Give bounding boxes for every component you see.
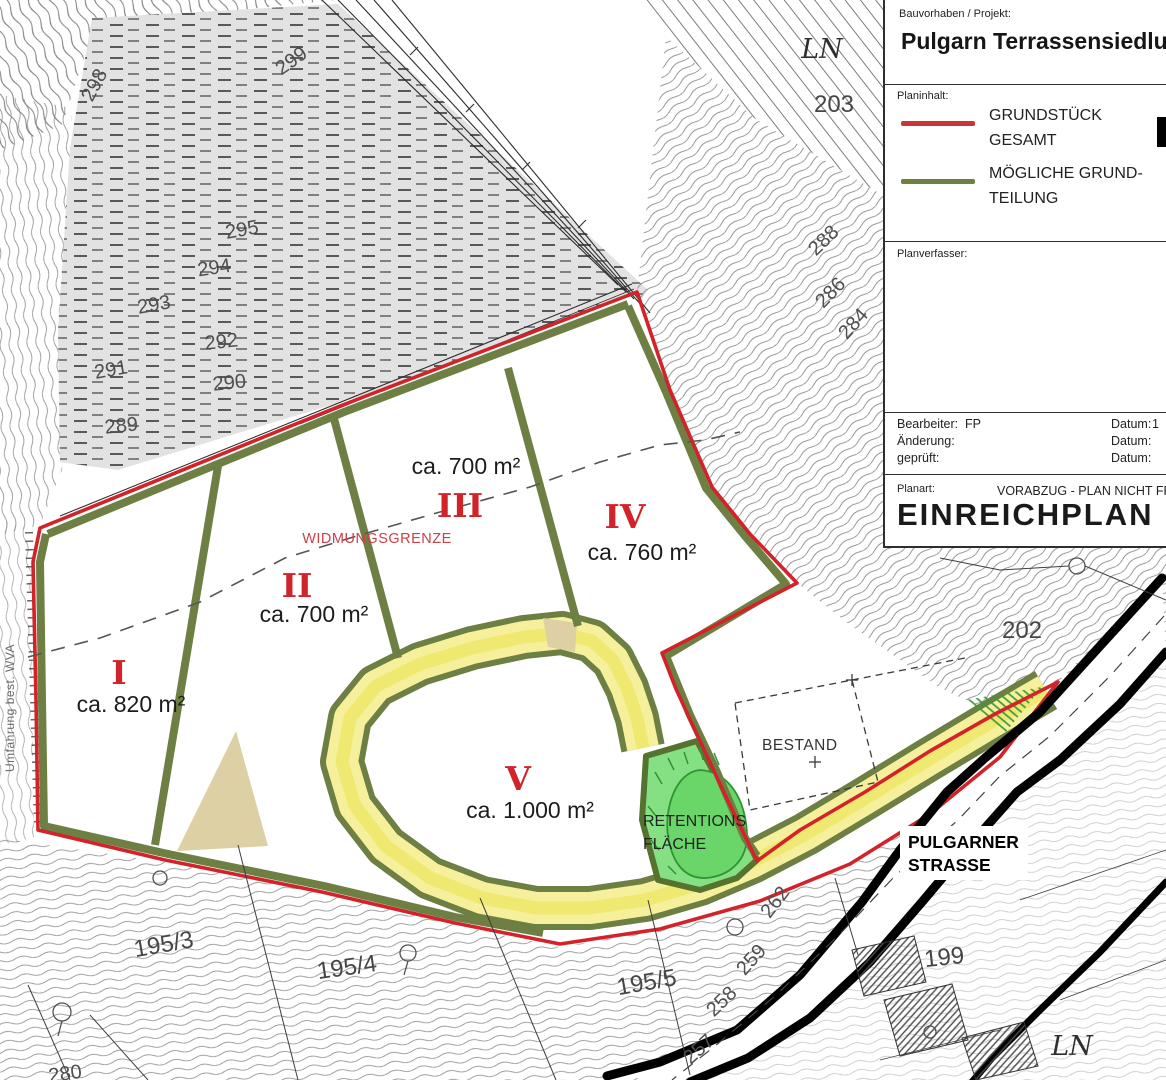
meta-label-geprueft: geprüft:: [897, 451, 939, 465]
street-name-box: PULGARNER STRASSE: [900, 826, 1028, 880]
plot-area-IV: ca. 760 m²: [588, 539, 697, 565]
plot-area-I: ca. 820 m²: [77, 691, 186, 717]
legend-red-label-2: GESAMT: [989, 132, 1057, 150]
edge-black-mark: [1157, 117, 1166, 147]
parcel-199: 199: [923, 942, 966, 973]
plot-area-II: ca. 700 m²: [260, 601, 369, 627]
retention-label-1: RETENTIONS: [643, 813, 746, 830]
plan-scan: I ca. 820 m² II ca. 700 m² III ca. 700 m…: [0, 0, 1166, 1080]
contour-294: 294: [196, 255, 232, 281]
contour-290: 290: [212, 370, 247, 395]
legend-green-label-1: MÖGLICHE GRUND-: [989, 165, 1143, 183]
plan-type: EINREICHPLAN: [897, 497, 1154, 533]
legend-green-label-2: TEILUNG: [989, 190, 1058, 208]
plot-area-V: ca. 1.000 m²: [466, 797, 594, 823]
title-block-project: Bauvorhaben / Projekt: Pulgarn Terrassen…: [885, 0, 1166, 85]
retention-label-2: FLÄCHE: [643, 835, 706, 853]
contour-292: 292: [204, 329, 239, 354]
widmungsgrenze-label: WIDMUNGSGRENZE: [302, 531, 452, 547]
plot-area-III: ca. 700 m²: [412, 453, 521, 479]
legend-red-label-1: GRUNDSTÜCK: [989, 107, 1102, 125]
title-block-plantype: Planart: VORABZUG - PLAN NICHT FREIGE EI…: [885, 475, 1166, 545]
content-label: Planinhalt:: [897, 90, 948, 102]
title-block-author: Planverfasser:: [885, 242, 1166, 413]
ln-mark-bottom: LN: [1050, 1031, 1094, 1062]
plot-numeral-IV: IV: [604, 497, 646, 536]
ln-mark-top: LN: [800, 34, 844, 65]
author-label: Planverfasser:: [897, 248, 967, 260]
plot-numeral-III: III: [437, 486, 483, 525]
contour-289: 289: [104, 413, 139, 438]
meta-value-bearbeiter: FP: [965, 417, 981, 431]
legend-green-line: [901, 179, 975, 184]
meta-label-bearbeiter: Bearbeiter:: [897, 417, 958, 431]
project-name: Pulgarn Terrassensiedlung: [901, 28, 1166, 55]
plot-numeral-V: V: [504, 759, 532, 798]
tan-patch-north: [543, 618, 577, 652]
title-block: Bauvorhaben / Projekt: Pulgarn Terrassen…: [883, 0, 1166, 548]
street-name-line2: STRASSE: [908, 855, 991, 875]
project-label: Bauvorhaben / Projekt:: [899, 8, 1011, 20]
meta-datevalue-bearbeiter: 1: [1152, 417, 1159, 431]
street-name-line1: PULGARNER: [908, 832, 1019, 852]
legend-red-line: [901, 121, 975, 126]
parcel-203: 203: [814, 91, 854, 118]
meta-datelabel-geprueft: Datum:: [1111, 451, 1151, 465]
meta-label-aenderung: Änderung:: [897, 434, 955, 448]
meta-datelabel-aenderung: Datum:: [1111, 434, 1151, 448]
release-note: VORABZUG - PLAN NICHT FREIGE: [997, 484, 1166, 498]
plantype-label: Planart:: [897, 483, 935, 495]
title-block-meta: Bearbeiter: FP Datum: 1 Änderung: Datum:…: [885, 413, 1166, 475]
plot-numeral-I: I: [111, 653, 126, 692]
meta-datelabel-bearbeiter: Datum:: [1111, 417, 1151, 431]
bestand-label: BESTAND: [762, 737, 838, 754]
title-block-legend: Planinhalt: GRUNDSTÜCK GESAMT MÖGLICHE G…: [885, 85, 1166, 242]
side-note: Umfahrung best. WVA: [3, 644, 17, 772]
plot-numeral-II: II: [282, 566, 313, 605]
parcel-202: 202: [1002, 617, 1042, 644]
